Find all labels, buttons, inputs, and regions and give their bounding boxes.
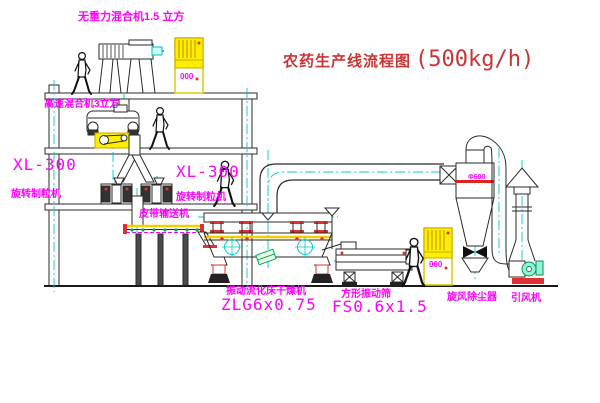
control-cabinet-2: [424, 228, 452, 285]
cabinet1-display: 000: [180, 73, 193, 81]
label-granulator-left-model: XL-300: [13, 157, 77, 173]
label-gravity-mixer: 无重力混合机1.5 立方: [78, 12, 184, 23]
label-fan: 引风机: [511, 294, 541, 304]
person-figure: [72, 53, 91, 94]
label-speed-mixer: 高速混合机3立方: [44, 100, 120, 110]
label-belt-conveyor: 皮带输送机: [139, 210, 189, 220]
flow-diagram-canvas: 农药生产线流程图 (500kg/h) 无重力混合机1.5 立方 高速混合机3立方…: [0, 0, 600, 403]
label-cyclone-size: Φ600: [468, 174, 485, 181]
title-capacity: (500kg/h): [415, 47, 534, 72]
induced-draft-fan: [509, 261, 544, 284]
person-figure: [150, 108, 169, 149]
label-granulator-mid-model: XL-300: [176, 164, 240, 180]
label-cyclone: 旋风除尘器: [447, 293, 497, 303]
granulator-left-machine: [101, 178, 132, 204]
speed-mixer-machine: [87, 105, 154, 182]
label-dryer-model: ZLG6x0.75: [221, 297, 317, 313]
title-text: 农药生产线流程图: [283, 50, 411, 71]
vibrating-sieve-machine: [322, 208, 416, 286]
label-granulator-mid-name: 旋转制粒机: [176, 193, 226, 203]
cabinet2-display: 000: [429, 261, 442, 269]
label-sieve-model: FS0.6x1.5: [332, 299, 428, 315]
control-cabinet-1: [175, 38, 203, 93]
diagram-title: 农药生产线流程图 (500kg/h): [283, 47, 534, 72]
label-granulator-left-name: 旋转制粒机: [11, 190, 61, 200]
